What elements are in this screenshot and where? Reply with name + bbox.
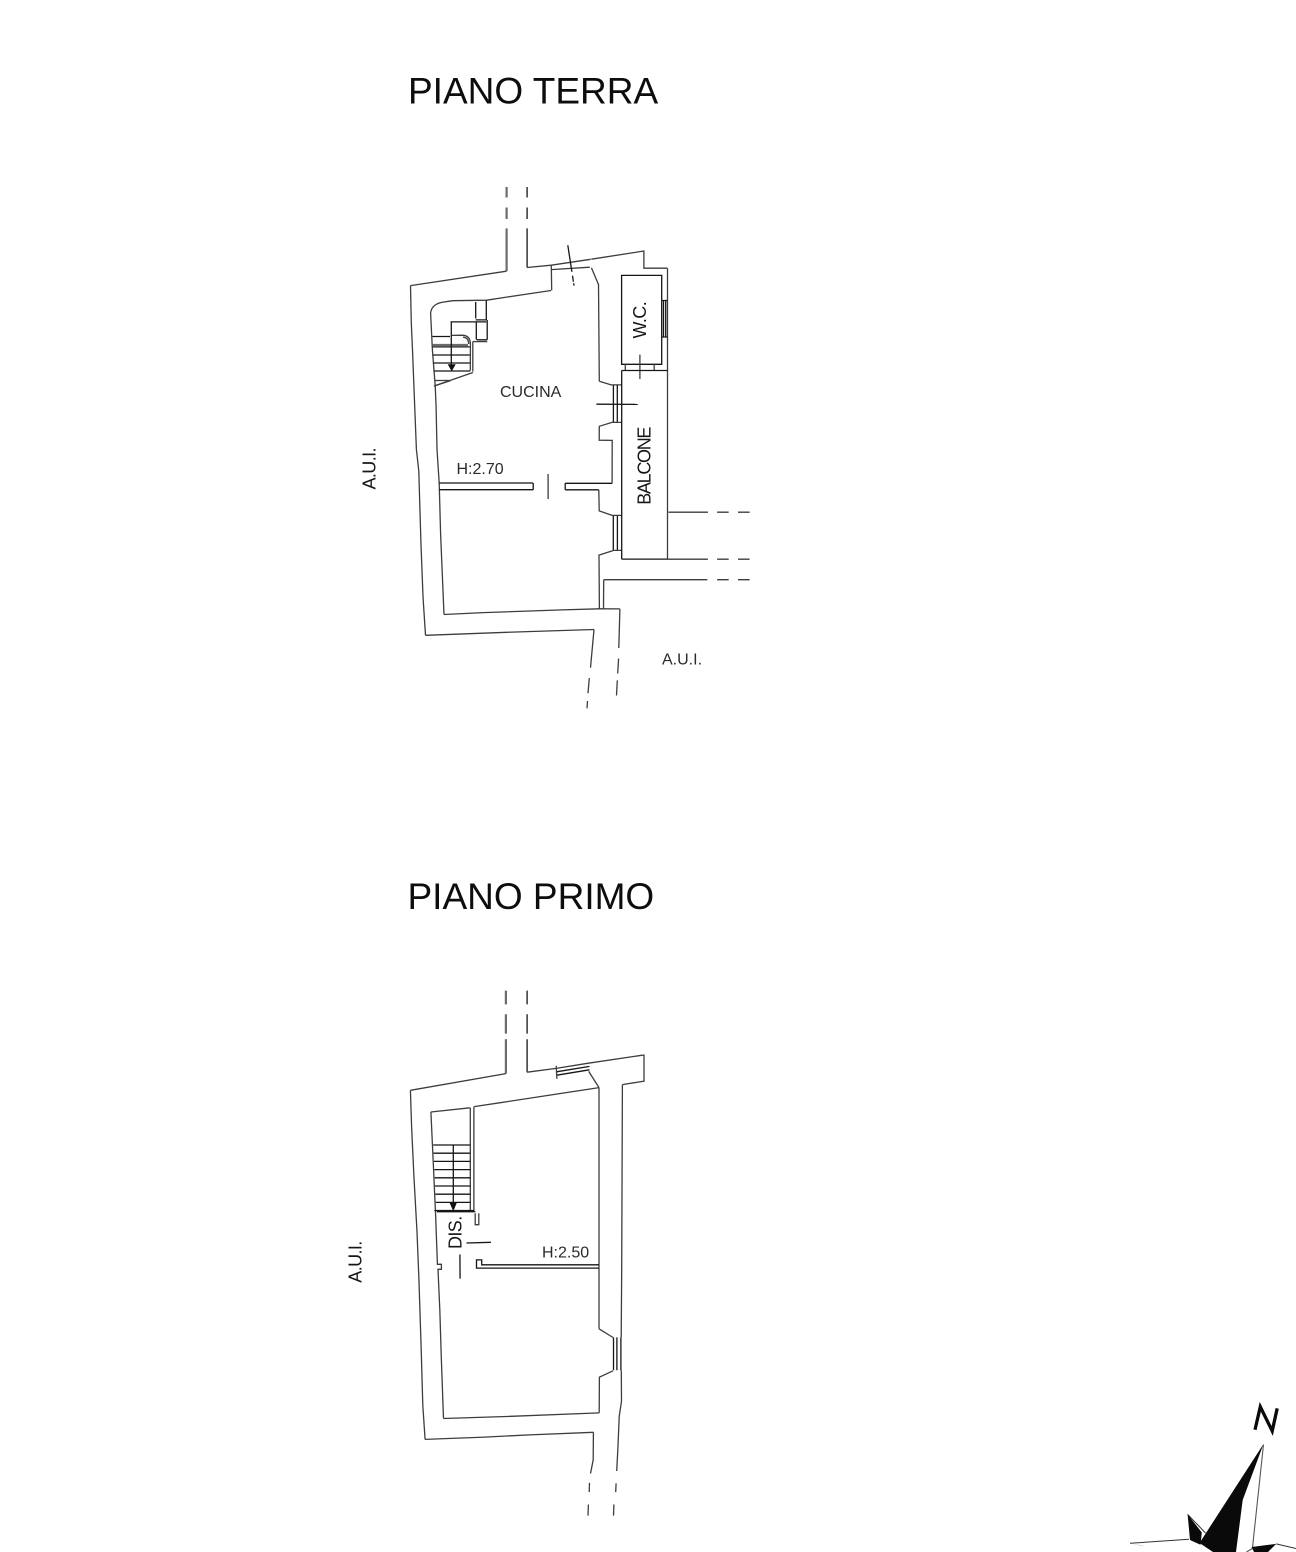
svg-text:A.U.I.: A.U.I. — [662, 651, 702, 668]
svg-text:H:2.50: H:2.50 — [542, 1245, 589, 1262]
svg-text:PIANO PRIMO: PIANO PRIMO — [408, 876, 655, 917]
svg-text:PIANO TERRA: PIANO TERRA — [408, 71, 658, 112]
svg-text:A.U.I.: A.U.I. — [360, 448, 380, 489]
svg-text:W.C.: W.C. — [630, 302, 650, 339]
svg-text:A.U.I.: A.U.I. — [346, 1241, 366, 1282]
svg-text:CUCINA: CUCINA — [500, 384, 562, 401]
svg-text:DIS.: DIS. — [445, 1216, 465, 1249]
svg-text:H:2.70: H:2.70 — [457, 461, 504, 478]
svg-text:BALCONE: BALCONE — [635, 427, 655, 505]
